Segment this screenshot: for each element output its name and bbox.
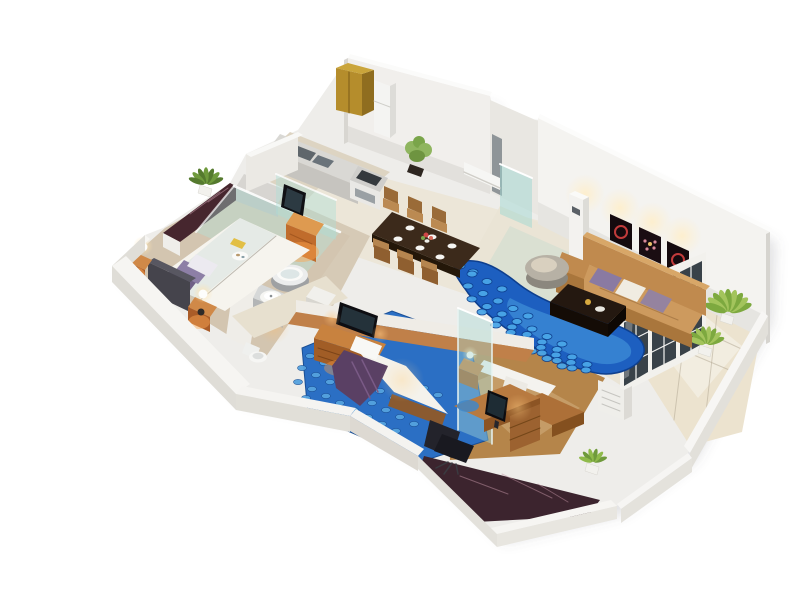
rug-dots (552, 347, 562, 353)
carpet-dots (322, 393, 331, 398)
art-motif-dot (645, 247, 648, 250)
table-vase (425, 239, 430, 243)
rug-dots (557, 341, 567, 347)
rug-dots (493, 298, 503, 304)
art-motif-dot (652, 246, 655, 249)
rug-dots (463, 283, 473, 289)
rug-dots (582, 362, 592, 368)
rug-dots (542, 334, 552, 340)
plate (448, 244, 457, 249)
rug-dots (552, 358, 562, 364)
plant-pot (198, 185, 212, 197)
rug-dots (497, 286, 507, 292)
gold-cabinet-side (362, 70, 374, 116)
rug-dots (508, 306, 518, 312)
rug-dots (542, 356, 552, 362)
table-dish (595, 306, 605, 312)
rug-dots (537, 339, 547, 345)
carpet-dots (410, 421, 419, 426)
plate (436, 255, 445, 260)
floorplan-svg (40, 16, 800, 581)
bed-tray (232, 252, 248, 261)
desk-glow (504, 394, 532, 422)
alarm-clock (198, 309, 205, 316)
wall-sconce-glow (323, 309, 341, 327)
rug-dots (523, 313, 533, 319)
art-motif-dot (653, 240, 656, 243)
art-motif-dot (643, 239, 646, 242)
rug-dots (478, 291, 488, 297)
tray-item (236, 254, 240, 257)
rug-dots (482, 304, 492, 310)
carpet-dots (306, 353, 315, 358)
rug-dots (467, 296, 477, 302)
carpet-dots (396, 414, 405, 419)
carpet-dots (368, 400, 377, 405)
lamp-ball (199, 290, 208, 299)
potted-shrub (409, 150, 425, 162)
rug-dots (527, 326, 537, 332)
table-flowers (429, 236, 433, 240)
rug-dots (537, 350, 547, 356)
ac-outdoor-side (624, 386, 632, 420)
carpet-dots (298, 365, 307, 370)
plate (394, 237, 403, 242)
rug-dots (467, 271, 477, 277)
washbasin-drain (270, 295, 273, 298)
plate (416, 246, 425, 251)
carpet-dots (434, 392, 443, 397)
apartment-floorplan-render (40, 16, 800, 581)
art-motif-dot (648, 242, 652, 246)
carpet-dots (294, 379, 303, 384)
rug-dots (581, 367, 591, 373)
rug-dots (567, 365, 577, 371)
desk-mat (457, 400, 479, 412)
carpet-dots (382, 407, 391, 412)
carpet-dots (312, 372, 321, 377)
rug-dots (492, 317, 502, 323)
rug-dots (567, 354, 577, 360)
tray-item (241, 256, 244, 258)
table-flowers (421, 236, 425, 240)
bed-glow (380, 358, 424, 402)
rug-dots (497, 311, 507, 317)
fridge-front (374, 80, 390, 138)
carpet-dots (308, 386, 317, 391)
pouf-highlight (531, 258, 557, 273)
rug-dots (557, 363, 567, 369)
rug-dots (512, 319, 522, 325)
rug-dots (507, 324, 517, 330)
tub-water (281, 269, 300, 279)
rug-dots (551, 352, 561, 358)
wall-sconce-glow (371, 325, 389, 343)
toilet-seat (253, 353, 264, 359)
fridge-side (390, 83, 396, 138)
carpet-dots (326, 379, 335, 384)
rug-dots (536, 345, 546, 351)
plate (406, 226, 415, 231)
rug-dots (477, 309, 487, 315)
rug-dots (566, 360, 576, 366)
rug-dots (482, 279, 492, 285)
table-item-gold (585, 299, 591, 305)
